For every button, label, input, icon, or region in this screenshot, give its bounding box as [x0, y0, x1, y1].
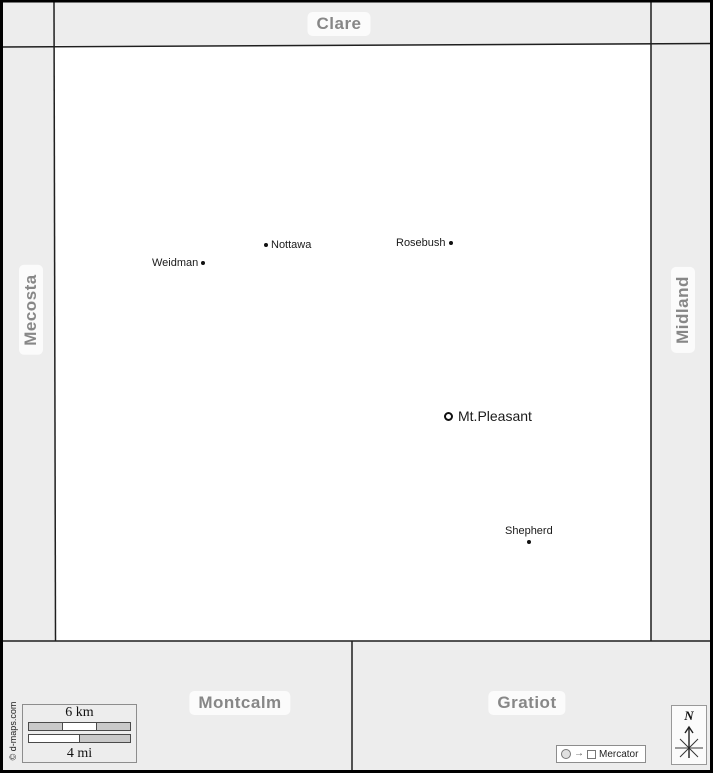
- projected-square-icon: [587, 750, 596, 759]
- city-label: Mt.Pleasant: [458, 408, 532, 424]
- city-weidman: Weidman: [152, 257, 205, 269]
- north-arrow-icon: [672, 724, 706, 762]
- arrow-right-icon: →: [574, 749, 584, 759]
- projection-legend: → Mercator: [556, 745, 646, 763]
- scale-bar: 6 km 4 mi: [22, 704, 137, 763]
- county-label-gratiot: Gratiot: [488, 691, 565, 715]
- scale-segment: [29, 735, 79, 742]
- copyright-credit: © d-maps.com: [8, 702, 18, 761]
- county-label-midland: Midland: [671, 267, 695, 353]
- city-label: Shepherd: [505, 525, 553, 537]
- scale-segment: [96, 723, 130, 730]
- compass-north-label: N: [672, 708, 706, 724]
- projection-name: Mercator: [599, 749, 638, 760]
- city-dot-icon: [201, 261, 205, 265]
- city-rosebush: Rosebush: [396, 237, 453, 249]
- county-label-clare: Clare: [307, 12, 370, 36]
- scale-segment: [29, 723, 62, 730]
- county-seat-marker-icon: [444, 412, 453, 421]
- city-label: Nottawa: [271, 239, 311, 251]
- city-label: Weidman: [152, 257, 198, 269]
- city-shepherd: Shepherd: [505, 525, 553, 544]
- compass: N: [671, 705, 707, 765]
- scale-km-bar: [28, 722, 131, 731]
- city-nottawa: Nottawa: [264, 239, 311, 251]
- city-dot-icon: [527, 540, 531, 544]
- scale-segment: [79, 735, 130, 742]
- county-label-montcalm: Montcalm: [189, 691, 290, 715]
- scale-segment: [62, 723, 96, 730]
- city-dot-icon: [449, 241, 453, 245]
- city-dot-icon: [264, 243, 268, 247]
- county-label-mecosta: Mecosta: [19, 265, 43, 355]
- city-label: Rosebush: [396, 237, 446, 249]
- city-mt-pleasant: Mt.Pleasant: [444, 408, 532, 424]
- scale-mi-label: 4 mi: [23, 746, 136, 762]
- scale-km-label: 6 km: [23, 705, 136, 721]
- globe-circle-icon: [561, 749, 571, 759]
- scale-mi-bar: [28, 734, 131, 743]
- map-canvas: Clare Mecosta Midland Montcalm Gratiot W…: [0, 0, 713, 773]
